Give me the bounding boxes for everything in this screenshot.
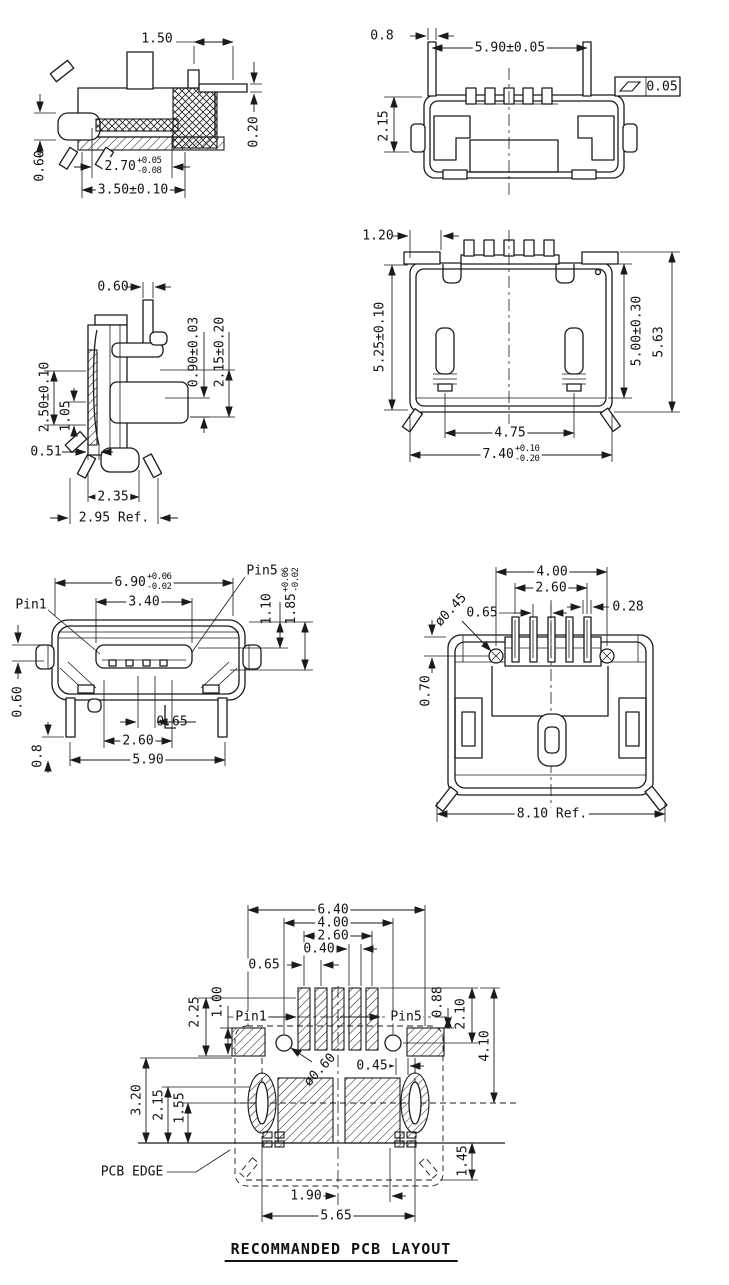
- dim-pin-width: 0.28: [612, 601, 643, 614]
- dim-overall-depth: 3.50±0.10: [96, 184, 170, 197]
- dim-top-pin-offset: 0.8: [370, 30, 393, 43]
- dim-top-height: 2.15: [378, 110, 391, 141]
- dim-slot-span: 5.65: [318, 1210, 353, 1223]
- dim-front-pin-pitch: 0.65: [156, 716, 187, 729]
- flatness-tolerance-value: 0.05: [646, 81, 677, 94]
- dim-opening-width: 3.40: [126, 596, 161, 609]
- dim-shell-width: 6.90 +0.06-0.02: [113, 573, 174, 593]
- technical-drawing-sheet: 1.50 0.20 0.60 2.70 +0.05-0.08 3.50±0.10…: [0, 0, 729, 1285]
- hole-right: [385, 1035, 401, 1051]
- dim-foot-offset: 0.51: [30, 446, 61, 459]
- dim-flange-height: 0.60: [12, 686, 25, 717]
- pad-pin2: [315, 988, 327, 1050]
- dim-pin-offset: 1.50: [141, 33, 172, 46]
- dim-center-to-pad: 1.90: [288, 1190, 323, 1203]
- dim-bump-height: 0.60: [34, 150, 47, 181]
- dim-pcb-gap: 0.45: [354, 1060, 389, 1073]
- shield-pad-right: [345, 1078, 400, 1143]
- dim-top-pin-span: 5.90±0.05: [473, 42, 547, 55]
- dim-stem-width: 0.60: [97, 281, 128, 294]
- dim-edge-3-20: 3.20: [131, 1084, 144, 1115]
- shield-pad-left: [278, 1078, 333, 1143]
- dim-hole-offset: 0.70: [420, 675, 433, 706]
- dim-edge-2-15: 2.15: [153, 1089, 166, 1120]
- dim-lead-thickness: 0.20: [248, 116, 261, 147]
- dim-rim-height: 1.10: [261, 593, 274, 624]
- dim-back-offset: 1.45: [457, 1145, 470, 1176]
- dim-contact-thickness: 0.90±0.03: [188, 317, 201, 387]
- pad-pin5: [366, 988, 378, 1050]
- label-pin1: Pin1: [15, 599, 46, 612]
- dim-edge-1-55: 1.55: [174, 1092, 187, 1123]
- dim-rear-pin-offset: 1.20: [362, 230, 393, 243]
- dim-pcb-pad-height: 2.10: [455, 998, 468, 1029]
- dim-contact-span: 2.60: [120, 735, 155, 748]
- dim-pad-pitch: 0.65: [246, 959, 281, 972]
- dim-pcb-pin-offset: 0.88: [432, 986, 445, 1017]
- pad-pin4: [349, 988, 361, 1050]
- dim-bottom-pin-pitch: 0.65: [466, 607, 497, 620]
- dim-inner-height: 1.05: [60, 400, 73, 431]
- dim-contact-height: 2.15±0.20: [214, 317, 227, 387]
- drawing-title: RECOMMANDED PCB LAYOUT: [225, 1242, 458, 1262]
- dim-mount-height: 1.00: [212, 986, 225, 1017]
- dim-body-width: 5.90: [130, 754, 165, 767]
- dim-bottom-overall: 8.10 Ref.: [515, 808, 589, 821]
- label-pcb-pin5: Pin5: [388, 1011, 423, 1024]
- dim-rear-shell-height: 5.00±0.30: [631, 296, 644, 366]
- dim-rear-width: 7.40 +0.10-0.20: [481, 445, 542, 465]
- mount-pad-right: [407, 1028, 444, 1056]
- dim-pad-to-slot: 4.10: [479, 1030, 492, 1061]
- pad-pin3: [332, 988, 344, 1050]
- label-pcb-edge: PCB EDGE: [101, 1166, 164, 1179]
- label-pin5: Pin5: [246, 565, 277, 578]
- dim-post-span: 4.75: [492, 427, 527, 440]
- pad-pin1: [298, 988, 310, 1050]
- dim-hole-span: 4.00: [534, 566, 569, 579]
- dim-bottom-pin-span: 2.60: [533, 582, 568, 595]
- dim-edge-offset: 2.25: [189, 996, 202, 1027]
- dim-opening-height: 1.85 +0.06-0.02: [282, 568, 302, 625]
- dim-foot-span: 2.35: [95, 491, 130, 504]
- dim-leg-length: 0.8: [32, 744, 45, 767]
- dim-pad-width: 0.40: [301, 943, 336, 956]
- dim-rear-overall-height: 5.63: [653, 326, 666, 357]
- hole-left: [276, 1035, 292, 1051]
- dim-depth: 2.70 +0.05-0.08: [103, 157, 164, 177]
- label-pcb-pin1: Pin1: [233, 1011, 268, 1024]
- mount-pad-left: [232, 1028, 265, 1056]
- dim-rear-body-height: 5.25±0.10: [374, 302, 387, 372]
- dim-side-overall: 2.95 Ref.: [79, 512, 149, 525]
- dim-body-height: 2.50±0.10: [39, 362, 52, 432]
